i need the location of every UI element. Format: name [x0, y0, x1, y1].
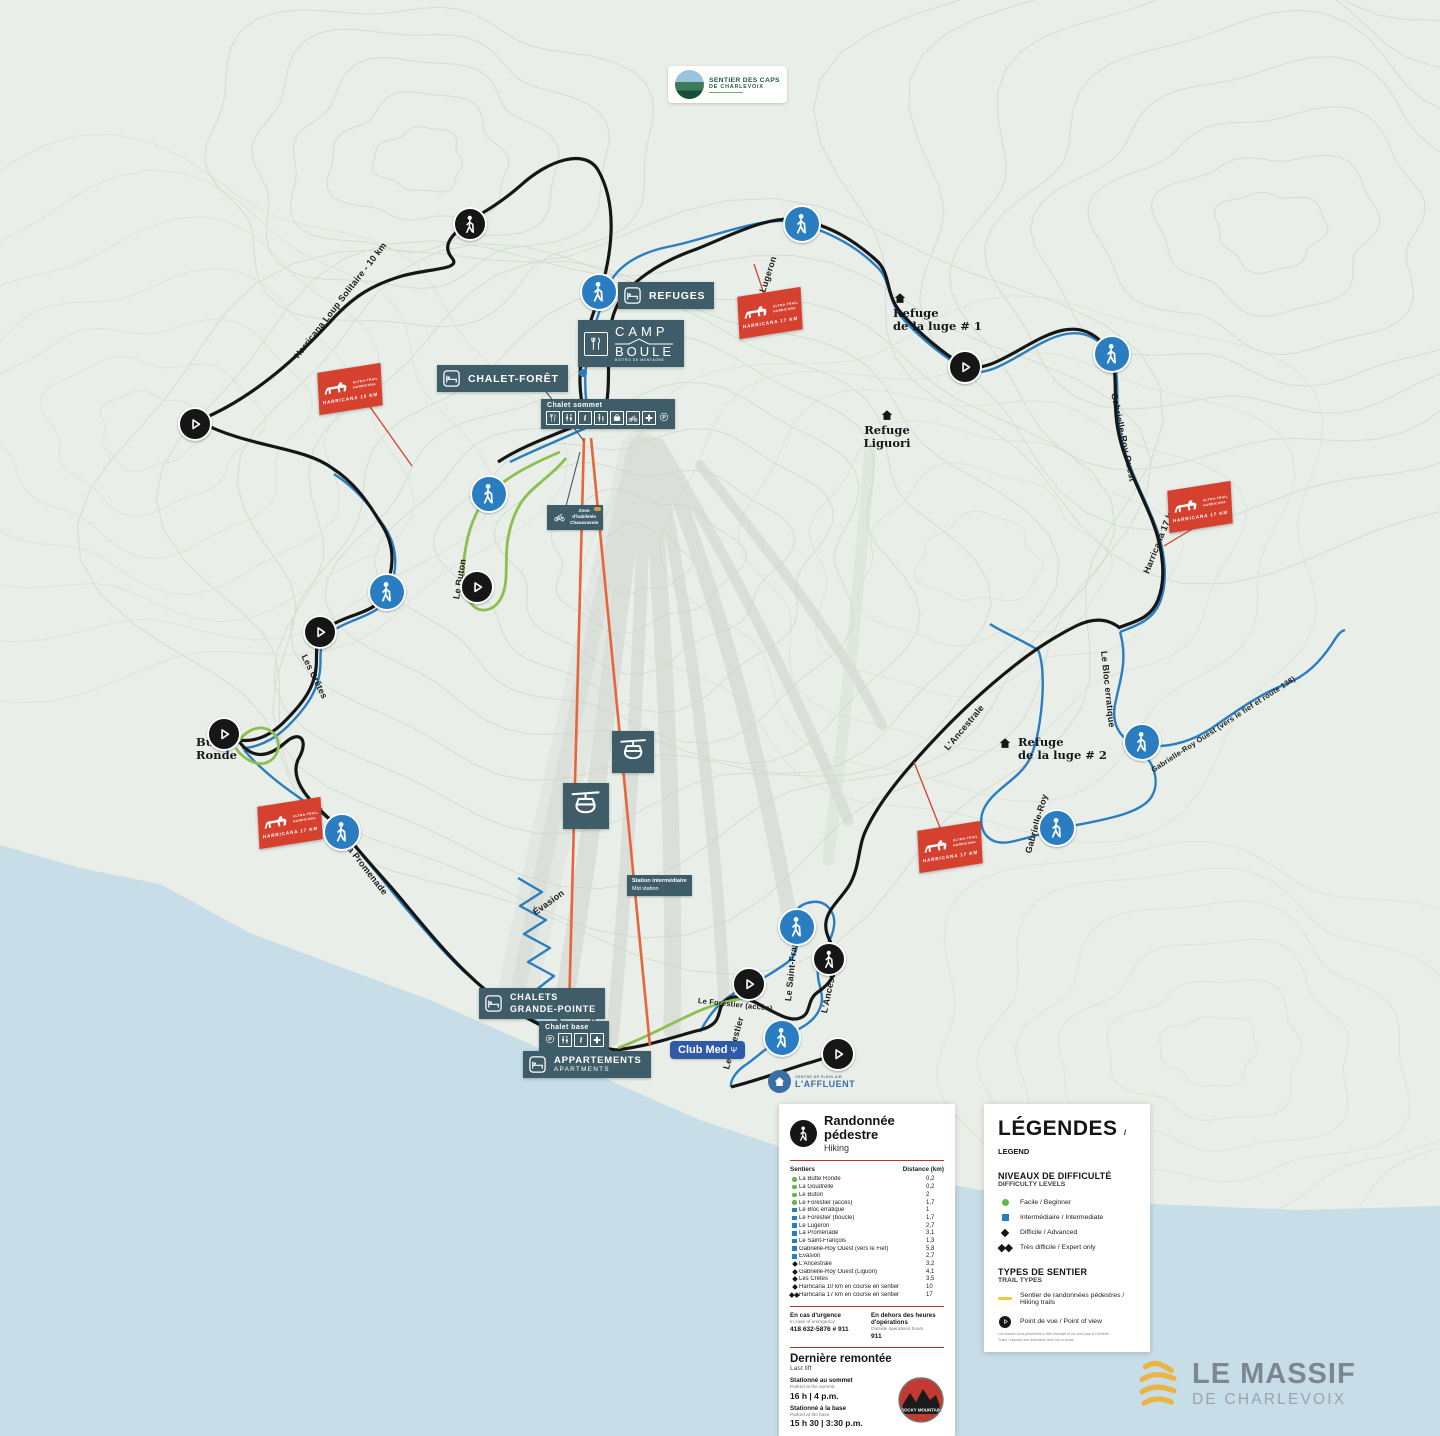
first-aid-icon	[590, 1033, 604, 1047]
hiking-panel-title: Randonnée pédestre	[824, 1114, 944, 1143]
info-icon	[578, 411, 592, 425]
legend-item-intermediate: Intermédiaire / Intermediate	[998, 1210, 1136, 1225]
viewpoint-icon	[821, 1037, 855, 1071]
le-massif-logo: LE MASSIF DE CHARLEVOIX	[1136, 1358, 1356, 1410]
legend-item-viewpoint: Point de vue / Point of view	[998, 1314, 1136, 1329]
wolf-icon	[741, 301, 772, 323]
trail-types-subtitle: TRAIL TYPES	[998, 1277, 1136, 1284]
restaurant-icon	[584, 332, 608, 356]
trail-row: Le Forestier (accès)1,7	[790, 1199, 944, 1207]
bike-icon	[626, 411, 640, 425]
trail-map: i P	[0, 0, 1440, 1436]
le-massif-region: DE CHARLEVOIX	[1192, 1392, 1356, 1408]
hiker-icon	[812, 942, 846, 976]
affluent-logo: CENTRE DE PLEIN AIR L'AFFLUENT	[768, 1070, 855, 1093]
hiker-icon	[453, 207, 487, 241]
column-header-trails: Sentiers	[790, 1166, 815, 1173]
restaurant-icon	[546, 411, 560, 425]
le-massif-mountain-icon	[1136, 1358, 1182, 1410]
legend-title: LÉGENDES	[998, 1117, 1118, 1140]
house-icon	[998, 736, 1012, 750]
hiker-icon	[790, 1120, 817, 1147]
appartements-label: APPARTEMENTS APARTMENTS	[523, 1051, 651, 1078]
club-med-trident-icon: Ψ	[731, 1046, 738, 1055]
hiker-icon	[778, 908, 816, 946]
gondola-icon	[563, 783, 609, 829]
viewpoint-icon	[303, 615, 337, 649]
trail-row: Le Bloc erratique1	[790, 1206, 944, 1214]
beginner-marker-icon	[1002, 1199, 1009, 1206]
trail-row: Harricana 10 km en course en sentier10	[790, 1283, 944, 1291]
hiker-icon	[763, 1019, 801, 1057]
legend-panel: LÉGENDES / LEGEND NIVEAUX DE DIFFICULTÉ …	[984, 1104, 1150, 1352]
parking-icon	[544, 1033, 556, 1045]
legend-item-beginner: Facile / Beginner	[998, 1195, 1136, 1210]
trail-row: Gabrielle-Roy Ouest (vers le Fief)5,8	[790, 1245, 944, 1253]
first-aid-icon	[642, 411, 656, 425]
intermediate-marker-icon	[1002, 1214, 1009, 1221]
gondola-icon	[612, 731, 654, 773]
trail-row: L'Ancestrale3,2	[790, 1260, 944, 1268]
wolf-icon	[321, 377, 352, 399]
affluent-line2: L'AFFLUENT	[795, 1079, 855, 1089]
trail-row: Le Lugeron2,7	[790, 1222, 944, 1230]
sentier-des-caps-region: DE CHARLEVOIX	[709, 84, 780, 90]
camp-boule-line1: CAMP	[615, 325, 669, 338]
poi-refuge-liguori: RefugeLiguori	[862, 408, 912, 450]
chalet-sommet-title: Chalet sommet	[547, 402, 670, 409]
trail-row: Le Buton2	[790, 1191, 944, 1199]
wolf-icon	[921, 835, 952, 857]
difficulty-section-subtitle: DIFFICULTY LEVELS	[998, 1181, 1136, 1188]
chalet-base-services: Chalet base	[539, 1021, 609, 1051]
viewpoint-icon	[460, 570, 494, 604]
sentier-des-caps-emblem-icon	[675, 70, 704, 99]
trail-row: Le Saint-François1,3	[790, 1237, 944, 1245]
hiker-icon	[323, 813, 361, 851]
wolf-icon	[1171, 495, 1202, 517]
trail-row: Évasion2,7	[790, 1252, 944, 1260]
hiker-icon	[580, 273, 618, 311]
bike-icon	[552, 511, 567, 523]
camp-boule-label: CAMP BOULE BISTRO DE MONTAGNE	[578, 320, 684, 367]
sentier-des-caps-logo: SENTIER DES CAPS DE CHARLEVOIX	[668, 66, 787, 103]
hiking-panel-subtitle: Hiking	[824, 1143, 944, 1153]
chalet-foret-label: CHALET-FORÊT	[437, 365, 568, 392]
column-header-distance: Distance (km)	[903, 1166, 944, 1173]
chalet-foret-text: CHALET-FORÊT	[468, 373, 559, 385]
trail-row: Le Forestier (boucle)1,7	[790, 1214, 944, 1222]
trail-row: Harricana 17 km en course en sentier17	[790, 1291, 944, 1299]
affluent-emblem-icon	[768, 1070, 791, 1093]
rocky-mountain-text: ROCKY MOUNTAIN	[901, 1408, 941, 1413]
viewpoint-icon	[999, 1316, 1011, 1328]
chalet-sommet-services: Chalet sommet	[541, 399, 675, 429]
chalet-base-title: Chalet base	[545, 1024, 604, 1031]
hiker-icon	[368, 573, 406, 611]
sentier-des-caps-name: SENTIER DES CAPS	[709, 77, 780, 84]
restroom-icon	[562, 411, 576, 425]
legend-item-expert: Très difficile / Expert only	[998, 1240, 1136, 1255]
viewpoint-icon	[207, 717, 241, 751]
hiker-icon	[783, 205, 821, 243]
club-med-logo: Club Med Ψ	[670, 1041, 745, 1059]
hiking-trail-line-icon	[998, 1297, 1012, 1300]
trail-list: La Butte Ronde0,2 La Goudrelle0,2 Le But…	[790, 1176, 944, 1299]
parking-icon	[658, 411, 670, 423]
refuges-label: REFUGES	[618, 282, 714, 309]
house-icon	[880, 408, 894, 422]
family-icon	[594, 411, 608, 425]
house-icon	[893, 291, 907, 305]
poi-refuge-luge-1: Refugede la luge # 1	[893, 291, 982, 333]
trail-row: La Butte Ronde0,2	[790, 1176, 944, 1184]
trail-row: Les Crêtes3,5	[790, 1276, 944, 1284]
restroom-icon	[558, 1033, 572, 1047]
camp-boule-sub: BISTRO DE MONTAGNE	[615, 359, 674, 362]
lodge-icon	[623, 286, 642, 305]
lodge-icon	[484, 994, 503, 1013]
hiker-icon	[1093, 335, 1131, 373]
chalets-grande-pointe-label: CHALETS GRANDE-POINTE	[479, 988, 605, 1019]
club-med-text: Club Med	[678, 1044, 728, 1056]
hiker-icon	[1038, 809, 1076, 847]
trail-row: La Goudrelle0,2	[790, 1183, 944, 1191]
poi-refuge-luge-2: Refugede la luge # 2	[998, 736, 1107, 762]
hiking-panel: Randonnée pédestre Hiking Sentiers Dista…	[779, 1104, 955, 1436]
difficulty-section-title: NIVEAUX DE DIFFICULTÉ	[998, 1171, 1136, 1181]
lodge-icon	[528, 1055, 547, 1074]
refuges-text: REFUGES	[649, 290, 705, 302]
trail-row: Gabrielle-Roy Ouest (Liguori)4,1	[790, 1268, 944, 1276]
mid-station-label: Station intermédiaire Mid station	[627, 875, 692, 896]
expert-marker-icon	[1005, 1244, 1013, 1252]
rocky-mountain-logo: ROCKY MOUNTAIN	[897, 1376, 945, 1424]
viewpoint-icon	[732, 967, 766, 1001]
trail-row: La Promenade3,1	[790, 1229, 944, 1237]
legend-item-hiking-trail: Sentier de randonnées pédestres / Hiking…	[998, 1291, 1136, 1306]
emergency-info: En cas d'urgence In case of emergency 41…	[790, 1312, 944, 1341]
legend-disclaimer: Les tracés sont présentés à titre indica…	[998, 1331, 1110, 1343]
info-icon	[574, 1033, 588, 1047]
camp-boule-line2: BOULE	[615, 345, 674, 358]
viewpoint-icon	[948, 350, 982, 384]
locker-icon	[610, 411, 624, 425]
bike-skills-zone-label: Zone d'habiletés Chaussavoie	[547, 505, 603, 530]
wolf-icon	[261, 811, 292, 833]
legend-item-advanced: Difficile / Advanced	[998, 1225, 1136, 1240]
zone-badge-icon	[594, 507, 601, 511]
trail-types-title: TYPES DE SENTIER	[998, 1267, 1136, 1277]
advanced-marker-icon	[1001, 1228, 1009, 1236]
hiker-icon	[1123, 723, 1161, 761]
le-massif-name: LE MASSIF	[1192, 1360, 1356, 1389]
lodge-icon	[442, 369, 461, 388]
hiker-icon	[470, 475, 508, 513]
viewpoint-icon	[178, 407, 212, 441]
